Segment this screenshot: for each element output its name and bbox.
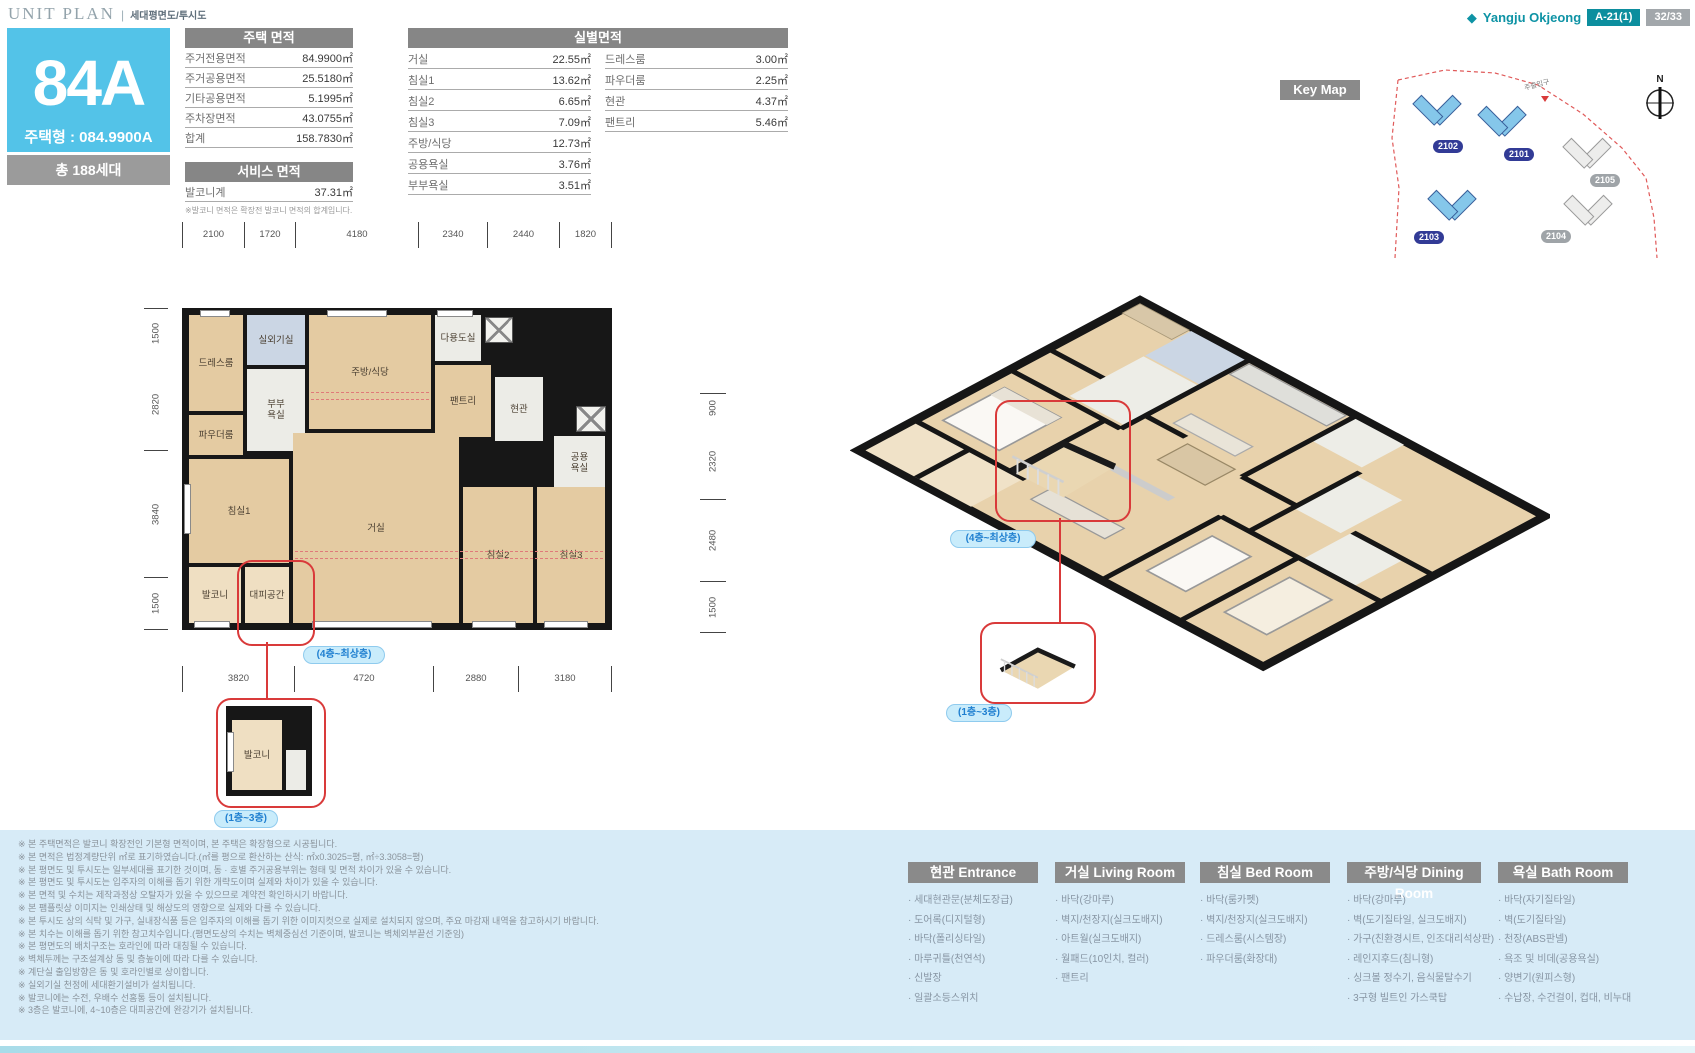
room-dress: 드레스룸 [189,315,243,411]
note-item: ※ 본 평면도 및 투시도는 입주자의 이해를 돕기 위한 개략도이며 실제와 … [18,876,838,889]
spec-bedroom: 침실 Bed Room 바닥(룸카펫) 벽지/천장지(실크도배지) 드레스룸(시… [1200,862,1340,969]
spec-item: 벽지/천장지(실크도배지) [1200,911,1340,931]
table-row: 팬트리 5.46㎡ [605,111,788,132]
row-label: 발코니계 [185,184,265,200]
spec-entrance: 현관 Entrance 세대현관문(분체도장급) 도어록(디지털형) 바닥(폴리… [908,862,1048,1008]
window [200,310,230,317]
house-area-table: 주택 면적 주거전용면적 84.9900㎡ 주거공용면적 25.5180㎡ 기타… [185,28,353,148]
window [437,310,473,317]
table-row: 침실1 13.62㎡ [408,69,591,90]
plan-dims-left: 1500 2820 3840 1500 [144,308,168,630]
compass-north-label: N [1642,74,1678,85]
perspective-view [850,178,1550,738]
dim-label: 1820 [559,222,612,248]
table-row: 드레스룸 3.00㎡ [605,48,788,69]
spec-item: 세대현관문(분체도장급) [908,891,1048,911]
spec-title: 욕실 Bath Room [1498,862,1628,883]
row-value: 2.25㎡ [756,72,788,88]
window [544,621,588,628]
persp-callout-lower-label: (1층~3층) [946,704,1012,722]
spec-item: 마루귀틀(천연석) [908,950,1048,970]
extension-dashed-line [311,392,429,400]
plan-callout-upper-label: (4층~최상층) [303,646,385,664]
unit-households: 총 188세대 [7,155,170,185]
brand-diamond-icon: ◆ [1467,11,1477,24]
room-area-title: 실별면적 [408,28,788,48]
note-item: ※ 발코니에는 수전, 우배수 선홈통 등이 설치됩니다. [18,992,838,1005]
dim-label: 2440 [487,222,559,248]
spec-item: 수납장, 수건걸이, 컵대, 비누대 [1498,989,1638,1009]
row-label: 주방/식당 [408,135,504,151]
row-label: 주거공용면적 [185,70,265,86]
window [472,621,516,628]
dim-label: 1500 [144,578,168,630]
room-balcony-detail: 발코니 [232,720,282,790]
notes-list: ※ 본 주택면적은 발코니 확장전인 기본형 면적이며, 본 주택은 확장형으로… [18,838,838,1017]
room-utility: 다용도실 [435,315,481,361]
spec-item: 파우더룸(화장대) [1200,950,1340,970]
service-area-note: ※발코니 면적은 확장전 발코니 면적의 합계입니다. [185,205,353,216]
plan-callout-connector [266,642,268,700]
table-row: 발코니계 37.31㎡ [185,182,353,202]
room-area-left-column: 거실 22.55㎡ 침실1 13.62㎡ 침실2 6.65㎡ 침실3 7.09㎡… [408,48,591,195]
dim-label: 1500 [700,582,726,633]
unit-type: 주택형 : 084.9900A [7,126,170,147]
note-item: ※ 본 투시도 상의 식탁 및 가구, 실내장식품 등은 입주자의 이해를 돕기… [18,915,838,928]
entrance-marker-icon [1541,96,1549,102]
brand-name: Yangju Okjeong [1483,10,1581,25]
spec-title: 현관 Entrance [908,862,1038,883]
building-label-2102: 2102 [1433,140,1463,153]
spec-item: 아트월(실크도배지) [1055,930,1195,950]
row-value: 3.76㎡ [559,156,591,172]
house-area-title: 주택 면적 [185,28,353,48]
duct-shaft [576,406,606,432]
spec-item: 레인지후드(침니형) [1347,950,1487,970]
row-value: 84.9900㎡ [302,50,353,66]
room-common-bath: 공용욕실 [554,436,605,490]
room-powder: 파우더룸 [189,415,243,455]
row-label: 침실2 [408,93,504,109]
spec-living: 거실 Living Room 바닥(강마루) 벽지/천장지(실크도배지) 아트월… [1055,862,1195,989]
row-value: 5.46㎡ [756,114,788,130]
note-item: ※ 본 평면도의 배치구조는 호라인에 따라 대칭될 수 있습니다. [18,940,838,953]
page-title: UNIT PLAN [8,4,115,24]
note-item: ※ 본 치수는 이해를 돕기 위한 참고치수입니다.(평면도상의 수치는 벽체중… [18,928,838,941]
window [312,621,432,628]
plan-dims-right: 900 2320 2480 1500 [700,393,726,633]
header-divider: | [121,8,124,22]
note-item: ※ 본 면적 및 수치는 제작과정상 오탈자가 있을 수 있으므로 계약전 확인… [18,889,838,902]
row-value: 6.65㎡ [559,93,591,109]
row-label: 주차장면적 [185,110,265,126]
compass: N [1642,74,1678,126]
spec-item: 가구(친환경시트, 인조대리석상판) [1347,930,1487,950]
table-row: 주방/식당 12.73㎡ [408,132,591,153]
row-label: 드레스룸 [605,51,701,67]
building-2105 [1563,123,1611,171]
page-number-badge: 32/33 [1646,9,1690,26]
table-row: 주차장면적 43.0755㎡ [185,108,353,128]
row-label: 침실3 [408,114,504,130]
window [227,732,234,772]
balcony-rail-drawing [982,624,1090,698]
dim-label: 900 [700,393,726,423]
spec-items: 바닥(강마루) 벽(도기질타일, 실크도배지) 가구(친환경시트, 인조대리석상… [1347,891,1487,1008]
spec-item: 싱크볼 정수기, 음식물탈수기 [1347,969,1487,989]
room-living: 거실 [293,433,459,623]
plan-dims-top: 2100 1720 4180 2340 2440 1820 [182,222,612,248]
note-item: ※ 벽체두께는 구조설계상 동 및 층높이에 따라 다를 수 있습니다. [18,953,838,966]
table-row: 침실3 7.09㎡ [408,111,591,132]
dim-label: 2820 [144,358,168,451]
row-label: 주거전용면적 [185,50,265,66]
balcony-rail-drawing [997,402,1125,516]
spec-items: 바닥(룸카펫) 벽지/천장지(실크도배지) 드레스룸(시스템장) 파우더룸(화장… [1200,891,1340,969]
spec-item: 벽(도기질타일) [1498,911,1638,931]
dim-label: 4180 [295,222,418,248]
spec-bath: 욕실 Bath Room 바닥(자기질타일) 벽(도기질타일) 천장(ABS판넬… [1498,862,1638,1008]
row-value: 7.09㎡ [559,114,591,130]
elevator-shaft [485,317,513,343]
dim-label: 2880 [433,666,518,692]
spec-item: 월패드(10인치, 컬러) [1055,950,1195,970]
building-label-2105: 2105 [1590,174,1620,187]
plan-callout-upper-box [237,560,315,646]
row-value: 3.00㎡ [756,51,788,67]
room-kitchen: 주방/식당 [309,315,431,429]
spec-item: 도어록(디지털형) [908,911,1048,931]
note-item: ※ 본 주택면적은 발코니 확장전인 기본형 면적이며, 본 주택은 확장형으로… [18,838,838,851]
brand-block: ◆ Yangju Okjeong A-21(1) 32/33 [1467,9,1690,26]
table-row: 주거전용면적 84.9900㎡ [185,48,353,68]
room-entry: 현관 [495,377,543,441]
spec-dining: 주방/식당 Dining Room 바닥(강마루) 벽(도기질타일, 실크도배지… [1347,862,1487,1008]
row-label: 현관 [605,93,701,109]
room-area-table: 실별면적 거실 22.55㎡ 침실1 13.62㎡ 침실2 6.65㎡ 침실3 … [408,28,788,195]
unit-card: 84A 주택형 : 084.9900A [7,28,170,152]
room-outdoor-unit: 실외기실 [247,315,305,365]
persp-callout-connector [1059,518,1061,622]
row-value: 3.51㎡ [559,177,591,193]
spec-items: 바닥(자기질타일) 벽(도기질타일) 천장(ABS판넬) 욕조 및 비데(공용욕… [1498,891,1638,1008]
row-value: 37.31㎡ [314,184,353,200]
row-value: 25.5180㎡ [302,70,353,86]
spec-item: 욕조 및 비데(공용욕실) [1498,950,1638,970]
dim-label: 3180 [518,666,612,692]
page-subtitle: 세대평면도/투시도 [130,7,206,22]
table-row: 침실2 6.65㎡ [408,90,591,111]
window [194,621,230,628]
room-balcony: 발코니 [189,567,241,623]
row-label: 파우더룸 [605,72,701,88]
note-item: ※ 본 평면도 및 투시도는 일부세대를 표기한 것이며, 동 · 호별 주거공… [18,864,838,877]
dim-label: 2100 [182,222,244,248]
table-row: 부부욕실 3.51㎡ [408,174,591,195]
table-row: 현관 4.37㎡ [605,90,788,111]
spec-item: 신발장 [908,969,1048,989]
extension-dashed-line [295,551,603,559]
spec-title: 침실 Bed Room [1200,862,1330,883]
table-row: 거실 22.55㎡ [408,48,591,69]
building-label-2101: 2101 [1504,148,1534,161]
dim-label: 2320 [700,423,726,500]
building-2104 [1564,180,1612,228]
spec-item: 벽(도기질타일, 실크도배지) [1347,911,1487,931]
row-label: 합계 [185,130,265,146]
spec-items: 바닥(강마루) 벽지/천장지(실크도배지) 아트월(실크도배지) 월패드(10인… [1055,891,1195,989]
service-area-title: 서비스 면적 [185,162,353,182]
row-label: 부부욕실 [408,177,504,193]
note-item: ※ 실외기실 천정에 세대환기설비가 설치됩니다. [18,979,838,992]
spec-item: 바닥(강마루) [1055,891,1195,911]
row-value: 43.0755㎡ [302,110,353,126]
spec-item: 양변기(원피스형) [1498,969,1638,989]
table-row: 합계 158.7830㎡ [185,128,353,148]
spec-item: 바닥(폴리싱타일) [908,930,1048,950]
row-label: 침실1 [408,72,504,88]
building-2102 [1413,80,1461,128]
spec-item: 바닥(룸카펫) [1200,891,1340,911]
note-item: ※ 본 면적은 법정계량단위 ㎡로 표기하였습니다.(㎡를 평으로 환산하는 산… [18,851,838,864]
table-row: 주거공용면적 25.5180㎡ [185,68,353,88]
table-row: 파우더룸 2.25㎡ [605,69,788,90]
room-bedroom1: 침실1 [189,459,289,563]
dim-label: 4720 [294,666,433,692]
spec-item: 바닥(자기질타일) [1498,891,1638,911]
plan-dims-bottom: 3820 4720 2880 3180 [182,666,612,692]
building-2101 [1478,91,1526,139]
row-label: 공용욕실 [408,156,504,172]
block-badge: A-21(1) [1587,9,1640,26]
spec-item: 드레스룸(시스템장) [1200,930,1340,950]
persp-callout-upper-label: (4층~최상층) [950,530,1036,548]
spec-items: 세대현관문(분체도장급) 도어록(디지털형) 바닥(폴리싱타일) 마루귀틀(천연… [908,891,1048,1008]
spec-title: 거실 Living Room [1055,862,1185,883]
table-row: 기타공용면적 5.1995㎡ [185,88,353,108]
spec-item: 3구형 빌트인 가스쿡탑 [1347,989,1487,1009]
compass-icon [1644,85,1676,121]
persp-callout-upper-box [995,400,1131,522]
spec-item: 천장(ABS판넬) [1498,930,1638,950]
dim-label: 3820 [182,666,294,692]
note-item: ※ 3층은 발코니에, 4~10층은 대피공간에 완강기가 설치됩니다. [18,1004,838,1017]
spec-item: 일괄소등스위치 [908,989,1048,1009]
keymap-title: Key Map [1280,80,1360,100]
row-value: 158.7830㎡ [296,130,353,146]
dim-label: 3840 [144,451,168,578]
row-value: 13.62㎡ [552,72,591,88]
row-label: 거실 [408,51,504,67]
table-row: 공용욕실 3.76㎡ [408,153,591,174]
page-header: UNIT PLAN | 세대평면도/투시도 [8,4,206,24]
window [327,310,387,317]
service-area-table: 서비스 면적 발코니계 37.31㎡ ※발코니 면적은 확장전 발코니 면적의 … [185,162,353,216]
row-value: 4.37㎡ [756,93,788,109]
unit-plan-page: UNIT PLAN | 세대평면도/투시도 ◆ Yangju Okjeong A… [0,0,1695,1053]
dim-label: 1720 [244,222,295,248]
row-value: 12.73㎡ [552,135,591,151]
spec-title: 주방/식당 Dining Room [1347,862,1481,883]
persp-callout-lower-box [980,622,1096,704]
row-value: 22.55㎡ [552,51,591,67]
spec-item: 벽지/천장지(실크도배지) [1055,911,1195,931]
note-item: ※ 계단실 출입방향은 동 및 호라인별로 상이합니다. [18,966,838,979]
dim-label: 1500 [144,308,168,358]
window [184,484,191,534]
row-value: 5.1995㎡ [308,90,353,106]
room-pantry: 팬트리 [435,365,491,437]
dim-label: 2480 [700,500,726,582]
note-item: ※ 본 팸플릿상 이미지는 인쇄상태 및 해상도의 영향으로 실제와 다를 수 … [18,902,838,915]
detail-corner [286,750,306,790]
dim-label: 2340 [418,222,487,248]
plan-callout-lower-label: (1층~3층) [214,810,278,828]
room-area-right-column: 드레스룸 3.00㎡ 파우더룸 2.25㎡ 현관 4.37㎡ 팬트리 5.46㎡ [605,48,788,195]
spec-item: 팬트리 [1055,969,1195,989]
bottom-strip [0,1046,1695,1053]
unit-name: 84A [7,40,170,126]
row-label: 팬트리 [605,114,701,130]
balcony-detail-plan: 발코니 [226,706,312,796]
row-label: 기타공용면적 [185,90,265,106]
